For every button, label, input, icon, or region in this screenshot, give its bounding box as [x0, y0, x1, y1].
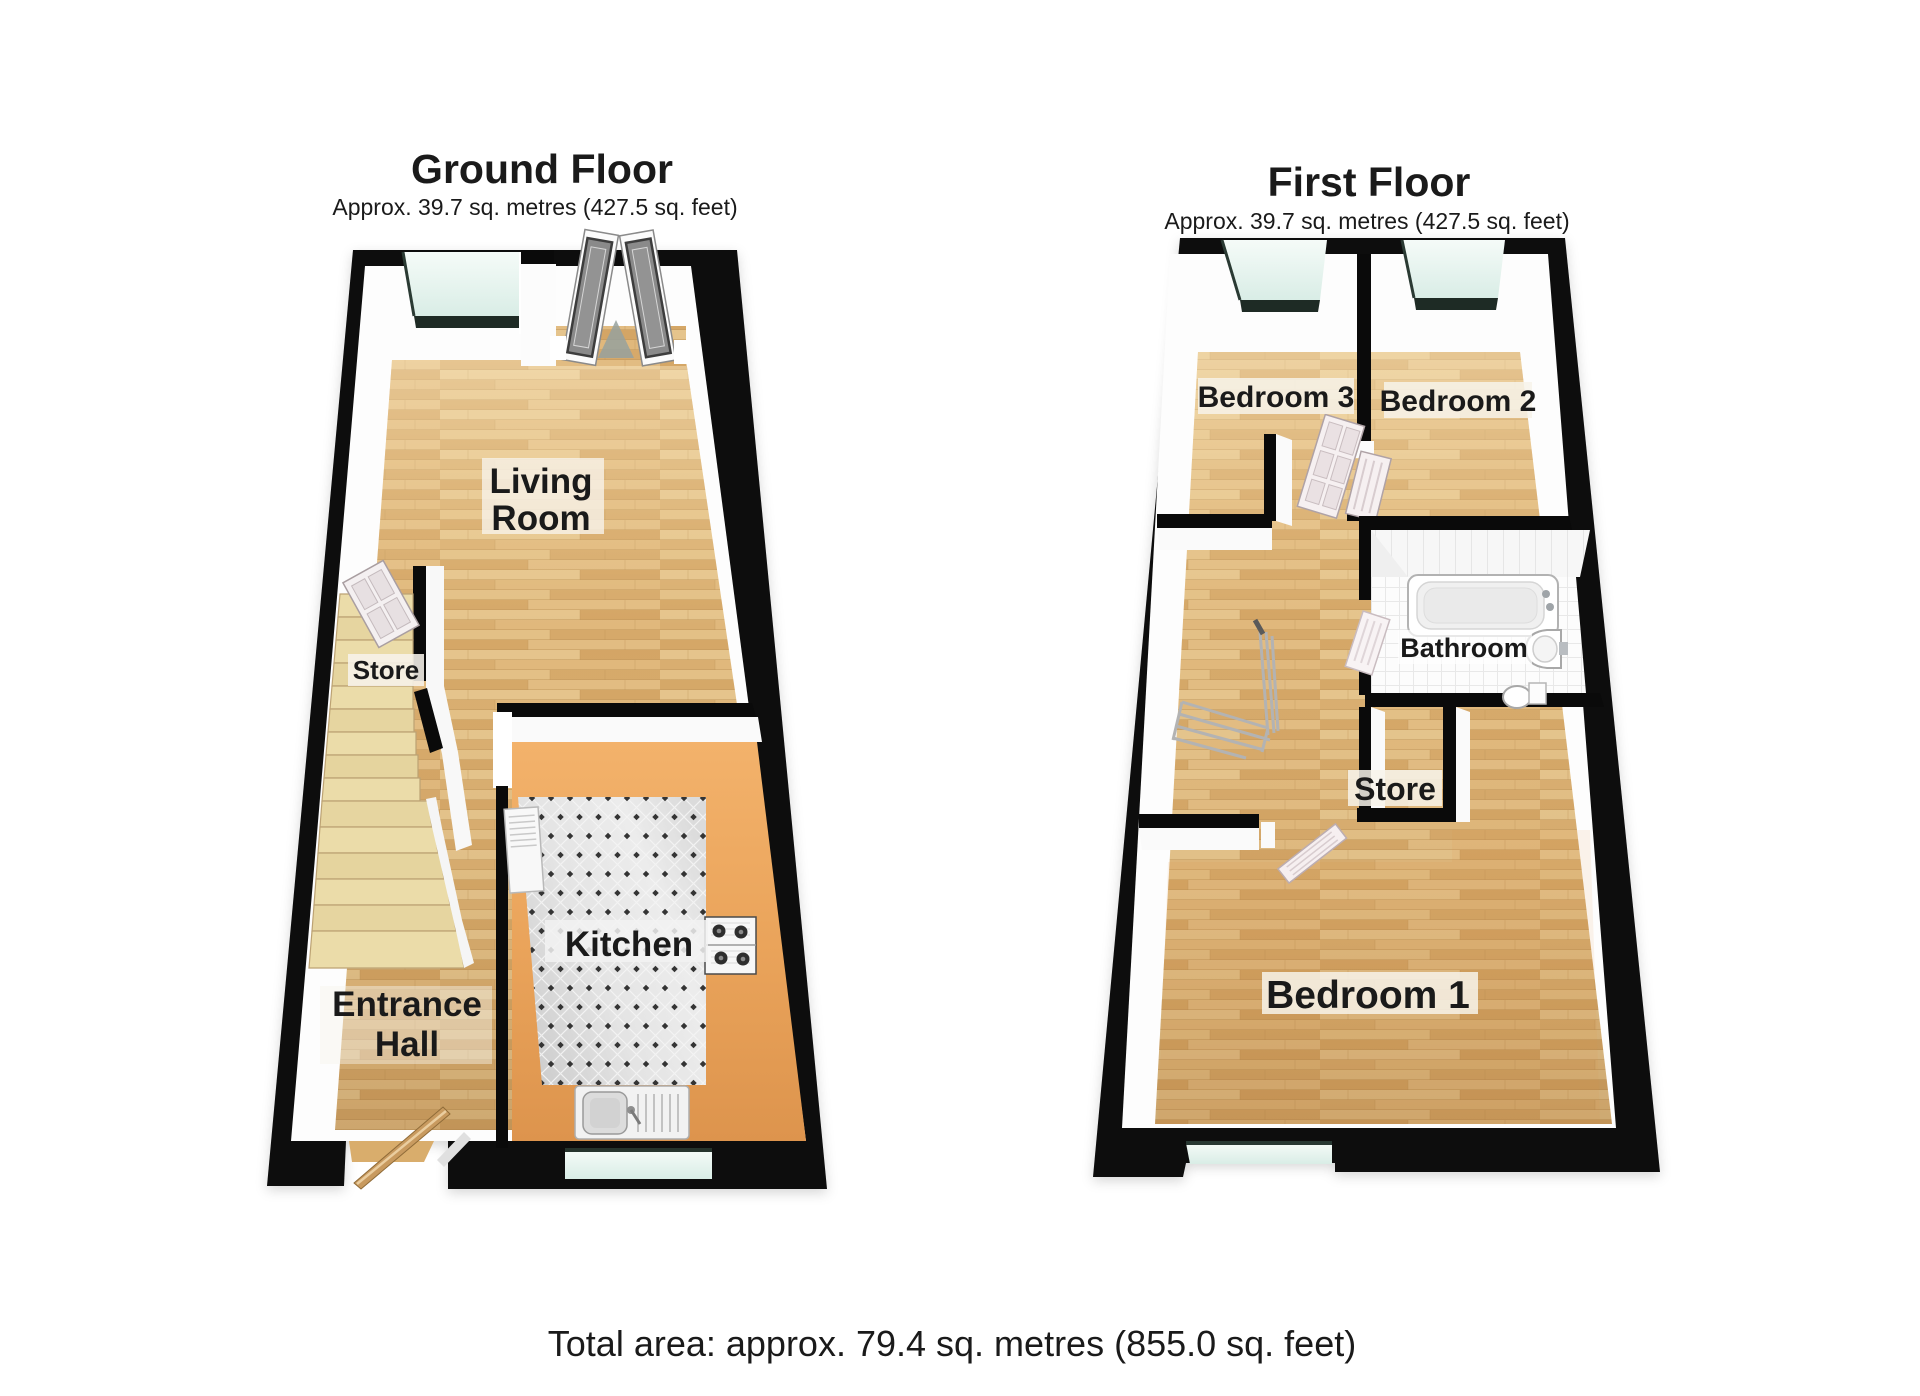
svg-text:Kitchen: Kitchen	[565, 925, 693, 964]
svg-text:First Floor: First Floor	[1268, 159, 1471, 205]
svg-text:Room: Room	[491, 499, 590, 538]
svg-text:Approx. 39.7 sq. metres (427.5: Approx. 39.7 sq. metres (427.5 sq. feet)	[1164, 208, 1569, 234]
svg-text:Store: Store	[1354, 771, 1436, 807]
svg-text:Living: Living	[489, 462, 592, 501]
svg-text:Bathroom: Bathroom	[1400, 633, 1528, 663]
svg-text:Store: Store	[353, 655, 419, 685]
svg-text:Total area: approx. 79.4 sq. m: Total area: approx. 79.4 sq. metres (855…	[548, 1323, 1356, 1364]
svg-text:Bedroom 3: Bedroom 3	[1198, 381, 1355, 414]
svg-text:Approx. 39.7 sq. metres (427.5: Approx. 39.7 sq. metres (427.5 sq. feet)	[332, 194, 737, 220]
svg-text:Hall: Hall	[375, 1025, 439, 1064]
svg-text:Entrance: Entrance	[332, 985, 482, 1024]
svg-text:Bedroom 1: Bedroom 1	[1266, 974, 1470, 1017]
svg-text:Bedroom 2: Bedroom 2	[1380, 385, 1537, 418]
svg-text:Ground Floor: Ground Floor	[411, 146, 673, 192]
